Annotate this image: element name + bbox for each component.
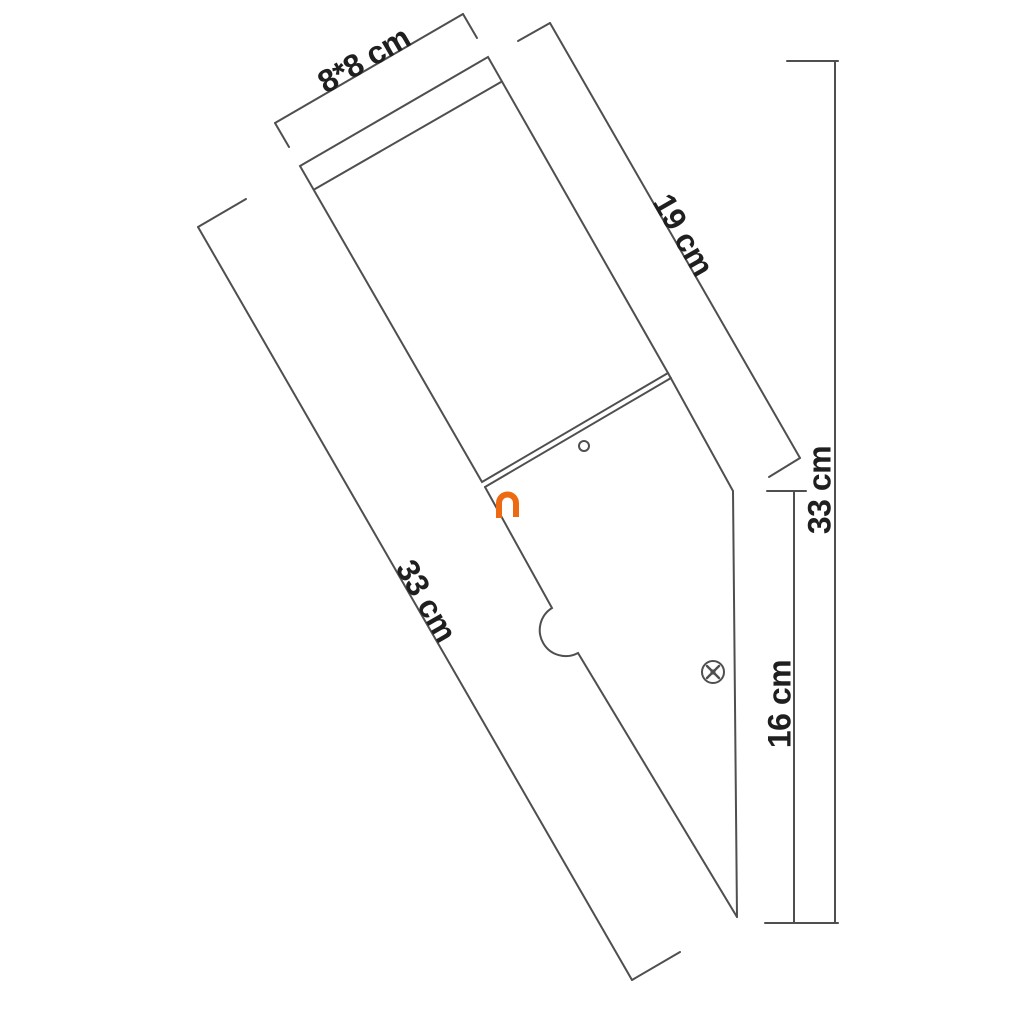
lamp-backplate: [485, 373, 737, 917]
screw-center-dot: [710, 669, 715, 674]
lamp-head-top-fold-line: [315, 82, 501, 189]
dim-19: [518, 23, 800, 477]
screw-icon: [702, 661, 724, 683]
dim-8x8-tick-left: [275, 123, 289, 147]
lamp-head: [300, 57, 668, 482]
dim-19-tick-bottom: [769, 458, 800, 477]
orange-clip-mark: [499, 495, 516, 519]
dim-label-16: 16 cm: [762, 660, 799, 748]
dim-19-tick-top: [518, 23, 550, 41]
mounting-hole-icon: [579, 441, 589, 451]
cable-notch: [485, 487, 737, 917]
backplate-right-edge: [668, 373, 737, 917]
dim-33-left-tick-bottom: [632, 952, 680, 980]
backplate-top-edge: [485, 378, 671, 487]
lamp-head-outline: [300, 57, 668, 482]
dimension-diagram: 8*8 cm 19 cm 33 cm 33 cm 16 cm: [0, 0, 1010, 1010]
lamp-line-art: [0, 0, 1010, 1010]
dim-8x8-tick-right: [463, 14, 477, 38]
dim-33-left-tick-top: [198, 199, 246, 227]
dim-label-33-right: 33 cm: [802, 446, 839, 534]
